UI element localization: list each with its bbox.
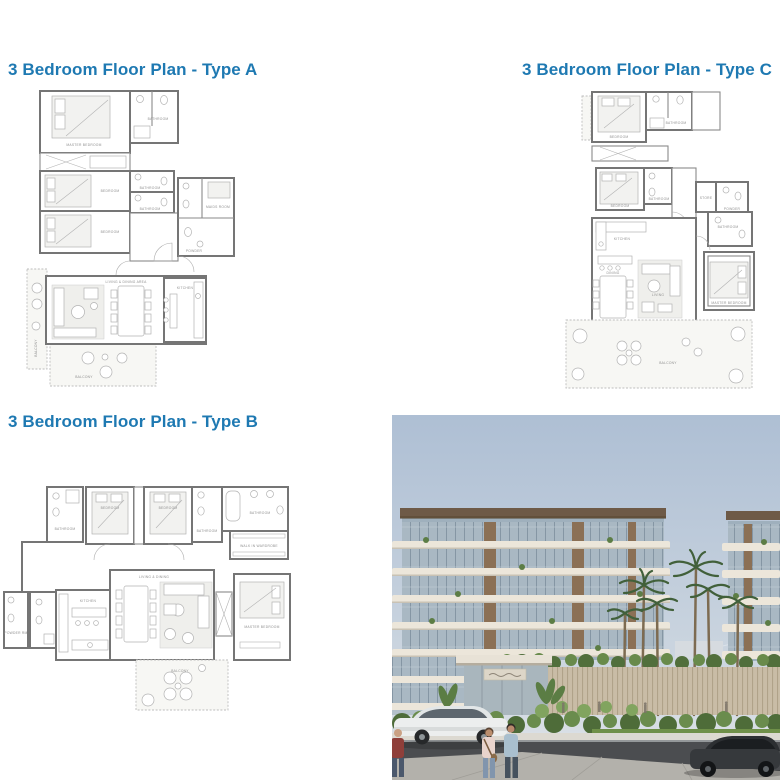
room-bedroom-2: BEDROOM — [40, 171, 130, 211]
building-right — [722, 511, 780, 661]
room-bathroom-1: BATHROOM — [47, 487, 83, 542]
wardrobe-x — [216, 592, 232, 636]
entry-corridor — [130, 213, 178, 261]
room-master-bedroom: MASTER BEDROOM — [40, 91, 130, 153]
svg-text:BEDROOM: BEDROOM — [611, 204, 630, 208]
room-bathroom-3: BATHROOM — [130, 192, 174, 213]
floorplan-type-b: BATHROOM BEDROOM BEDROOM BATHROOM — [2, 482, 294, 718]
svg-text:BATHROOM: BATHROOM — [649, 197, 670, 201]
room-bathroom-2: BATHROOM — [192, 487, 222, 542]
svg-text:BATHROOM: BATHROOM — [666, 121, 687, 125]
living-area: LIVING — [638, 260, 682, 318]
room-bedroom-2: BEDROOM — [144, 487, 192, 544]
wardrobe-band — [40, 153, 130, 171]
svg-text:BEDROOM: BEDROOM — [159, 506, 178, 510]
svg-text:STORE: STORE — [700, 196, 713, 200]
section-title-type-a: 3 Bedroom Floor Plan - Type A — [8, 60, 257, 80]
room-bathroom-3: BATHROOM — [222, 487, 288, 531]
svg-text:BATHROOM: BATHROOM — [140, 207, 161, 211]
building-render-photo — [392, 415, 780, 780]
svg-text:LIVING & DINING AREA: LIVING & DINING AREA — [105, 280, 147, 284]
outer-wall — [4, 542, 47, 592]
svg-text:BALCONY: BALCONY — [75, 375, 93, 379]
svg-text:KITCHEN: KITCHEN — [614, 237, 631, 241]
shared-wardrobe — [134, 487, 144, 544]
svg-text:POWDER: POWDER — [186, 249, 203, 253]
svg-text:MASTER BEDROOM: MASTER BEDROOM — [66, 143, 101, 147]
room-maids: MAIDS ROOM POWDER — [178, 178, 234, 256]
room-store: STORE — [696, 182, 716, 212]
svg-text:BEDROOM: BEDROOM — [101, 189, 120, 193]
balcony-small — [582, 96, 591, 140]
door-arc — [94, 544, 110, 560]
wardrobe-band — [592, 146, 668, 161]
svg-text:BATHROOM: BATHROOM — [148, 117, 169, 121]
svg-text:KITCHEN: KITCHEN — [80, 599, 97, 603]
room-bathroom-3: BATHROOM — [708, 212, 752, 246]
room-bathroom-1: BATHROOM — [646, 92, 692, 130]
room-master-bedroom: MASTER BEDROOM — [234, 574, 290, 660]
svg-text:BALCONY: BALCONY — [659, 361, 677, 365]
svg-text:KITCHEN: KITCHEN — [177, 286, 194, 290]
room-bathroom-1: BATHROOM — [130, 91, 178, 143]
svg-text:BALCONY: BALCONY — [171, 669, 189, 673]
svg-text:BEDROOM: BEDROOM — [101, 230, 120, 234]
floorplan-type-c: BEDROOM BATHROOM BEDROOM — [558, 84, 760, 398]
svg-text:BATHROOM: BATHROOM — [197, 529, 218, 533]
svg-text:WALK IN WARDROBE: WALK IN WARDROBE — [240, 544, 278, 548]
svg-text:MASTER BEDROOM: MASTER BEDROOM — [244, 625, 279, 629]
balcony-bottom: BALCONY — [50, 344, 156, 386]
brochure-page: 3 Bedroom Floor Plan - Type A 3 Bedroom … — [0, 0, 780, 780]
building-left — [392, 508, 670, 660]
room-bedroom-3: BEDROOM — [40, 211, 130, 253]
svg-text:LIVING: LIVING — [652, 293, 664, 297]
svg-text:BEDROOM: BEDROOM — [610, 135, 629, 139]
room-master-bedroom: MASTER BEDROOM — [704, 252, 754, 310]
balcony-left: BALCONY — [27, 269, 47, 369]
section-title-type-b: 3 Bedroom Floor Plan - Type B — [8, 412, 258, 432]
svg-text:POWDER: POWDER — [724, 207, 741, 211]
room-kitchen: KITCHEN — [56, 590, 110, 660]
svg-text:BATHROOM: BATHROOM — [718, 225, 739, 229]
balcony: BALCONY — [136, 660, 228, 710]
room-bedroom-1: BEDROOM — [86, 487, 134, 544]
room-powder: POWDER — [716, 182, 748, 214]
svg-text:BATHROOM: BATHROOM — [55, 527, 76, 531]
entrance-sign — [484, 669, 526, 680]
svg-text:POWDER RM: POWDER RM — [4, 631, 27, 635]
svg-text:BEDROOM: BEDROOM — [101, 506, 120, 510]
section-title-type-c: 3 Bedroom Floor Plan - Type C — [522, 60, 772, 80]
svg-text:BATHROOM: BATHROOM — [250, 511, 271, 515]
room-bedroom-1: BEDROOM — [592, 92, 646, 142]
balcony-main: BALCONY — [566, 320, 752, 388]
door-arc — [168, 544, 184, 560]
room-powder: POWDER RM — [4, 592, 28, 648]
room-bedroom-2: BEDROOM — [596, 168, 644, 210]
room-bathroom-2: BATHROOM — [644, 168, 672, 204]
svg-text:MASTER BEDROOM: MASTER BEDROOM — [711, 301, 746, 305]
room-bathroom-4 — [30, 592, 56, 648]
room-living-dining: LIVING & DINING — [110, 570, 214, 660]
svg-text:BATHROOM: BATHROOM — [140, 186, 161, 190]
floorplan-type-a: BALCONY BALCONY MASTER BEDROOM BATHROOM — [26, 86, 240, 394]
svg-text:LIVING & DINING: LIVING & DINING — [139, 575, 169, 579]
room-kitchen: KITCHEN — [164, 278, 206, 342]
room-bathroom-2: BATHROOM — [130, 171, 174, 192]
svg-text:BALCONY: BALCONY — [34, 339, 38, 357]
utility-shaft — [692, 92, 720, 130]
svg-text:DINING: DINING — [606, 271, 619, 275]
svg-text:MAIDS ROOM: MAIDS ROOM — [206, 205, 230, 209]
room-walk-in-wardrobe: WALK IN WARDROBE — [230, 531, 288, 559]
